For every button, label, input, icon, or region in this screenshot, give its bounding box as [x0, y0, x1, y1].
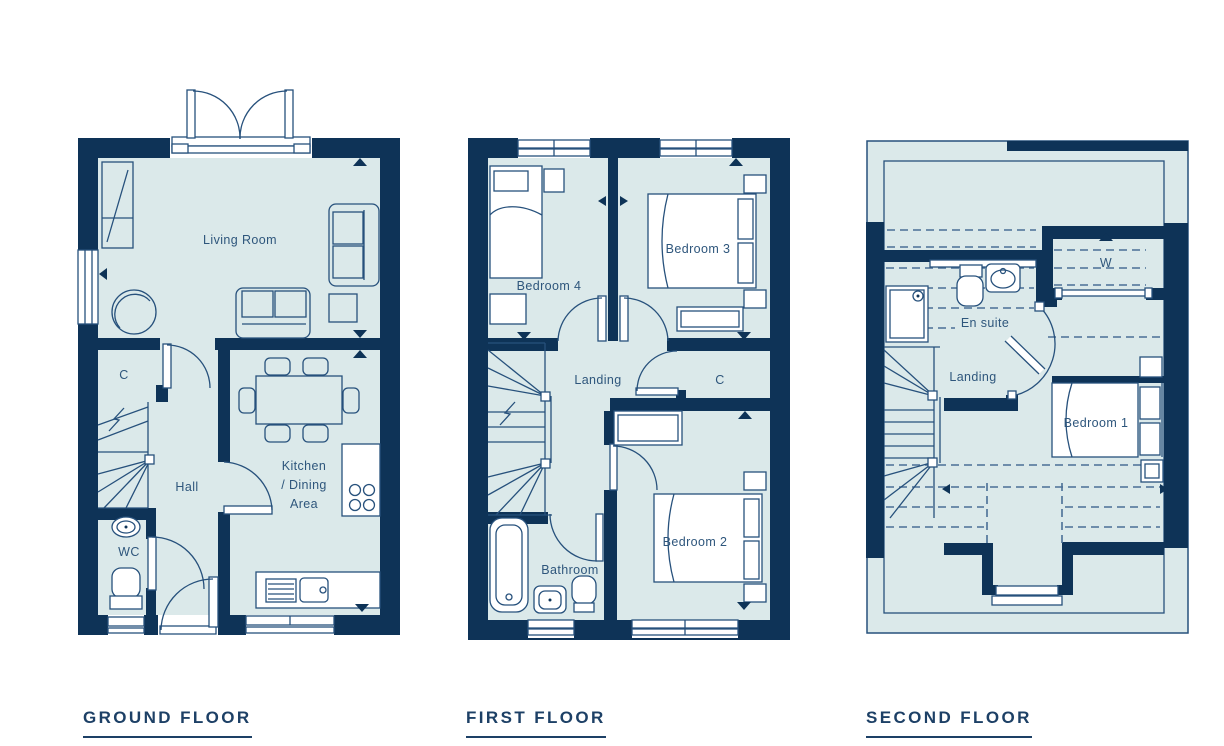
room-label-bedroom2: Bedroom 2 — [663, 535, 728, 549]
floor-title-first: FIRST FLOOR — [466, 708, 606, 738]
room-label-bathroom: Bathroom — [541, 563, 598, 577]
room-label-wc: WC — [118, 545, 140, 559]
room-label-living-room: Living Room — [203, 233, 277, 247]
room-label-landing: Landing — [574, 373, 621, 387]
ground-floor-plan: Living Room C Hall WC Kitchen / Dining A… — [78, 90, 400, 635]
room-label-cupboard: C — [715, 373, 724, 387]
room-label-cupboard: C — [119, 368, 128, 382]
floor-title-second: SECOND FLOOR — [866, 708, 1032, 738]
room-label-bedroom1: Bedroom 1 — [1064, 416, 1129, 430]
room-label-kitchen-line3: Area — [290, 497, 318, 511]
floorplan-page: Living Room C Hall WC Kitchen / Dining A… — [0, 0, 1224, 746]
first-floor-plan: Bedroom 4 Bedroom 3 Landing C Bathroom B… — [468, 138, 790, 640]
floorplans-drawing: Living Room C Hall WC Kitchen / Dining A… — [0, 0, 1224, 746]
room-label-bedroom3: Bedroom 3 — [666, 242, 731, 256]
room-label-ensuite: En suite — [961, 316, 1009, 330]
room-label-hall: Hall — [175, 480, 198, 494]
floor-title-ground: GROUND FLOOR — [83, 708, 252, 738]
room-label-landing: Landing — [949, 370, 996, 384]
room-label-kitchen-line2: / Dining — [281, 478, 327, 492]
second-floor-plan: W En suite Landing Bedroom 1 — [866, 141, 1188, 633]
room-label-kitchen-line1: Kitchen — [282, 459, 327, 473]
room-label-bedroom4: Bedroom 4 — [517, 279, 582, 293]
room-label-wardrobe: W — [1100, 256, 1112, 270]
